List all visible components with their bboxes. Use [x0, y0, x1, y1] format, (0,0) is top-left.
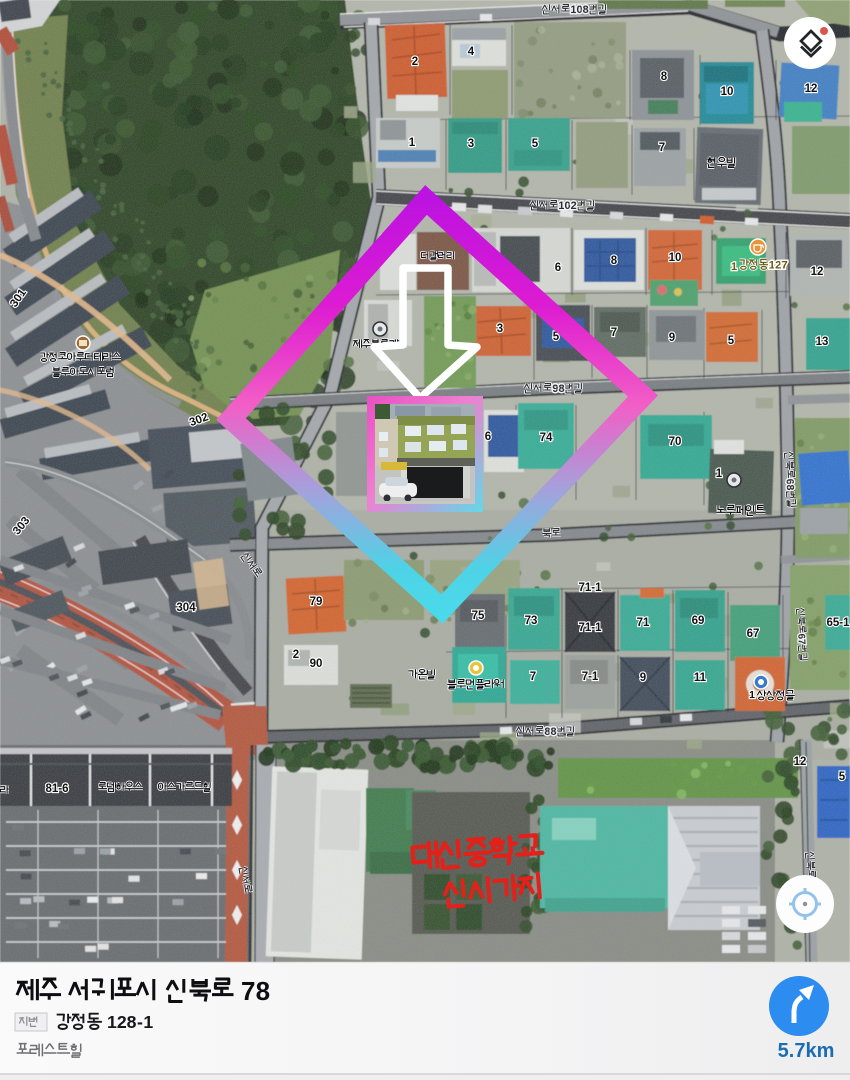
svg-text:2: 2: [117, 1012, 127, 1032]
svg-text:1: 1: [409, 137, 416, 149]
svg-text:81-6: 81-6: [45, 783, 68, 795]
svg-text:70: 70: [669, 436, 682, 448]
svg-text:5: 5: [728, 335, 735, 347]
svg-text:7: 7: [796, 639, 807, 646]
svg-text:75: 75: [472, 610, 485, 622]
svg-text:12: 12: [811, 266, 824, 278]
svg-text:13: 13: [816, 336, 829, 348]
svg-text:8: 8: [583, 4, 589, 16]
svg-text:10: 10: [721, 86, 734, 98]
svg-text:8: 8: [558, 383, 564, 395]
svg-text:65-1: 65-1: [826, 617, 850, 629]
svg-text:8: 8: [784, 484, 795, 491]
svg-text:71: 71: [637, 617, 650, 629]
svg-text:3: 3: [468, 138, 474, 150]
svg-text:6: 6: [555, 262, 561, 274]
svg-text:8: 8: [256, 976, 270, 1006]
svg-text:1: 1: [107, 1012, 117, 1032]
svg-text:71-1: 71-1: [578, 582, 602, 594]
svg-text:7: 7: [611, 327, 617, 339]
svg-text:7: 7: [659, 142, 665, 154]
svg-text:74: 74: [540, 432, 553, 444]
svg-text:7-1: 7-1: [582, 671, 599, 683]
svg-text:12: 12: [805, 83, 818, 95]
svg-text:9: 9: [640, 672, 646, 684]
svg-text:-: -: [137, 1012, 143, 1032]
svg-text:304: 304: [176, 602, 196, 614]
svg-text:1: 1: [716, 468, 723, 480]
svg-text:10: 10: [669, 252, 682, 264]
svg-text:8: 8: [611, 255, 618, 267]
svg-text:5: 5: [532, 138, 539, 150]
svg-text:1: 1: [731, 261, 737, 273]
svg-text:67: 67: [747, 628, 760, 640]
svg-text:1: 1: [749, 689, 755, 701]
svg-text:6: 6: [485, 431, 491, 443]
svg-text:3: 3: [497, 323, 503, 335]
svg-text:4: 4: [468, 46, 475, 58]
svg-text:2: 2: [293, 649, 299, 661]
svg-text:79: 79: [310, 596, 323, 608]
svg-text:71-1: 71-1: [578, 622, 602, 634]
svg-text:8: 8: [661, 71, 668, 83]
svg-text:7: 7: [530, 671, 536, 683]
svg-text:11: 11: [694, 672, 707, 684]
svg-text:7: 7: [781, 260, 787, 272]
svg-text:1: 1: [143, 1012, 153, 1032]
svg-text:8: 8: [550, 726, 556, 738]
svg-text:69: 69: [692, 615, 705, 627]
svg-text:7: 7: [241, 976, 255, 1006]
svg-text:2: 2: [412, 56, 418, 68]
svg-text:8: 8: [127, 1012, 137, 1032]
svg-text:2: 2: [571, 200, 577, 212]
svg-text:90: 90: [310, 658, 323, 670]
svg-text:73: 73: [525, 615, 538, 627]
svg-text:5.7km: 5.7km: [778, 1040, 835, 1062]
svg-text:9: 9: [669, 332, 675, 344]
svg-text:12: 12: [794, 756, 807, 768]
svg-text:5: 5: [839, 771, 846, 783]
